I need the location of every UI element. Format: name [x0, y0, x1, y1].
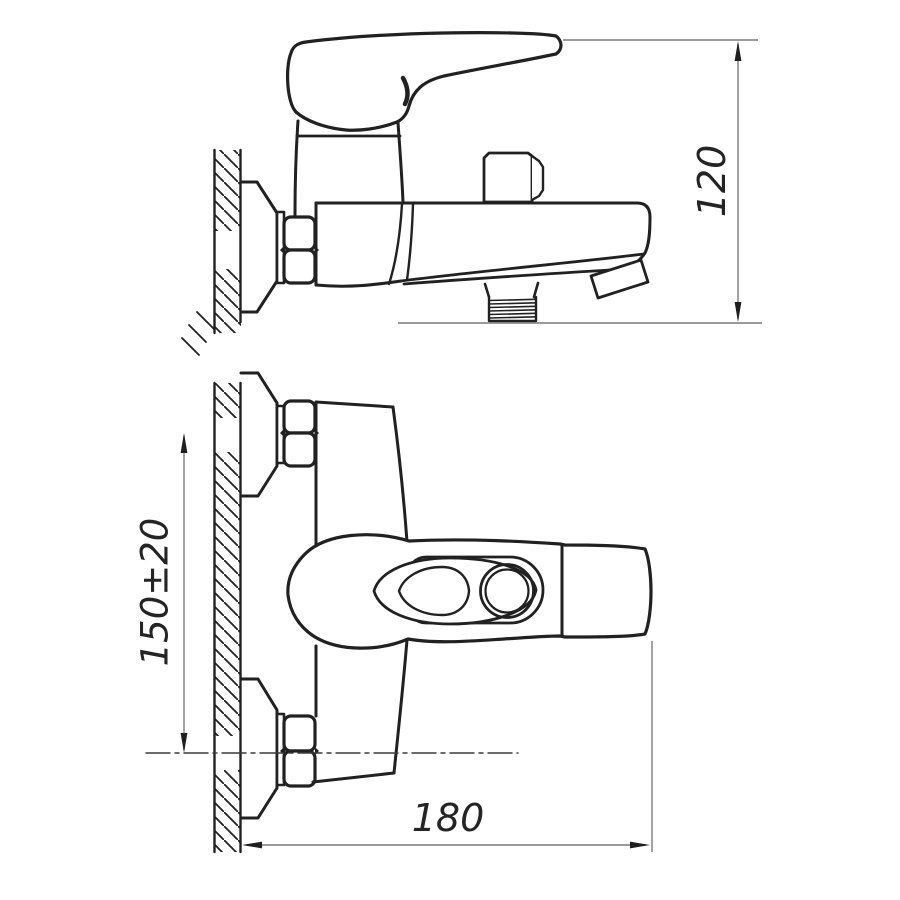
technical-drawing-canvas: 120 150±20 180	[0, 0, 900, 900]
cartridge-neck	[295, 121, 403, 215]
side-view	[182, 33, 650, 355]
body-joint-lines	[389, 204, 413, 284]
escutcheon-side	[241, 182, 277, 312]
arrowhead-left	[242, 842, 262, 849]
aerator	[591, 260, 648, 298]
arrowhead-down	[181, 733, 188, 753]
arrowhead-right	[630, 842, 650, 849]
dim-150-label: 150±20	[134, 518, 177, 667]
dim-180-label: 180	[412, 796, 485, 840]
dimension-150: 150±20	[134, 433, 188, 753]
mounting-nut-side	[280, 217, 319, 283]
technical-drawing-page: 120 150±20 180	[0, 0, 900, 900]
arrowhead-up	[735, 41, 742, 61]
front-view	[146, 373, 651, 852]
dim-120-label: 120	[690, 145, 734, 218]
wall-section-side	[182, 150, 243, 355]
shower-outlet-threads	[485, 283, 538, 321]
handle-side	[288, 33, 561, 131]
wall-section-front	[212, 383, 243, 852]
lower-inlet-assembly	[241, 679, 319, 818]
diverter-knob	[484, 153, 543, 202]
arrowhead-up	[181, 433, 188, 453]
upper-inlet-assembly	[241, 373, 319, 496]
lever-recess	[374, 557, 543, 624]
arrowhead-down	[735, 302, 742, 322]
